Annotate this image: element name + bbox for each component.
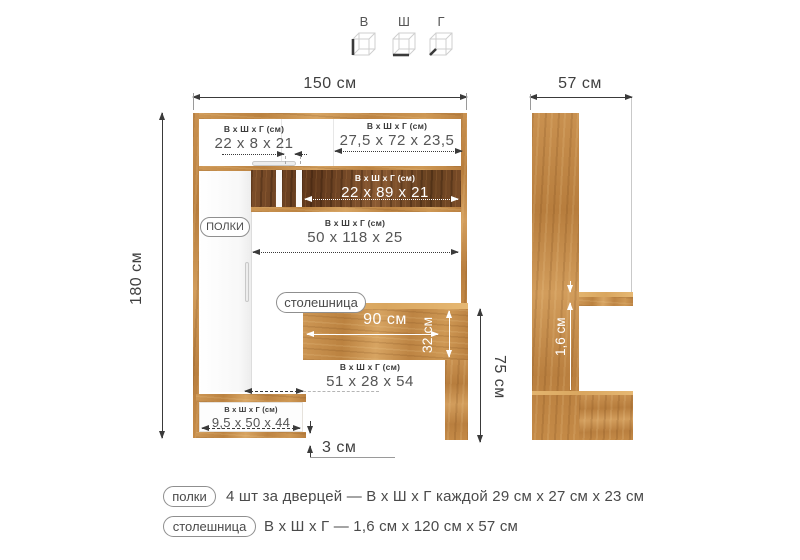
legend-shelves-pill: полки xyxy=(163,486,216,507)
front-total-height-dim: 180 см xyxy=(128,240,154,316)
legend-shelves-text: 4 шт за дверцей — В х Ш х Г каждой 29 см… xyxy=(226,488,644,505)
plinth-up-arrow xyxy=(310,446,311,457)
shelves-tag-pill: ПОЛКИ xyxy=(200,217,250,237)
niche-divider xyxy=(296,170,302,207)
open-shelf-dims: 50 x 118 x 25 xyxy=(255,229,455,246)
dims-header: В х Ш х Г (см) xyxy=(333,121,461,132)
shelf-board xyxy=(251,207,461,212)
width-cube-icon xyxy=(389,30,419,60)
legend-desktop-pill: столешница xyxy=(163,516,256,537)
legend-desktop-text: В х Ш х Г — 1,6 см х 120 см х 57 см xyxy=(264,518,518,535)
niche-label: В х Ш х Г (см) 22 x 89 x 21 xyxy=(315,173,455,201)
side-depth-dim: 57 см xyxy=(540,75,620,93)
drawer-top-board xyxy=(196,394,306,402)
thickness-down-arrow xyxy=(570,281,571,292)
top-right-cabinet-dims: 27,5 x 72 x 23,5 xyxy=(333,132,461,149)
dims-header: В х Ш х Г (см) xyxy=(295,362,445,373)
side-thickness-dim: 1,6 см xyxy=(553,308,569,366)
under-desk-width-arrow xyxy=(245,391,303,392)
plinth-down-arrow xyxy=(310,421,311,433)
side-pedestal xyxy=(579,395,633,440)
under-desk-label: В х Ш х Г (см) 51 x 28 x 54 xyxy=(295,362,445,390)
top-right-width-arrow xyxy=(335,151,462,152)
dims-header: В х Ш х Г (см) xyxy=(199,404,303,415)
desk-tag-pill: столешница xyxy=(276,292,366,313)
top-left-width-arrow xyxy=(222,154,284,155)
height-cube-icon xyxy=(349,30,379,60)
desk-height-dim: 75 см xyxy=(488,343,508,411)
front-width-arrow xyxy=(193,97,467,98)
height-axis-label: В xyxy=(360,14,369,29)
top-left-cabinet-dims: 22 x 8 x 21 xyxy=(199,135,309,152)
side-depth-arrow xyxy=(530,97,632,98)
desk-depth-arrow xyxy=(449,311,450,357)
front-total-width-dim: 150 см xyxy=(250,75,410,93)
drawer-label: В х Ш х Г (см) 9,5 x 50 x 44 xyxy=(199,404,303,430)
desk-height-arrow xyxy=(480,309,481,442)
under-desk-guide xyxy=(303,391,379,392)
top-left-cabinet-label: В х Ш х Г (см) 22 x 8 x 21 xyxy=(199,124,309,152)
top-right-cabinet-label: В х Ш х Г (см) 27,5 x 72 x 23,5 xyxy=(333,121,461,149)
drawer-width-arrow xyxy=(202,428,300,429)
side-desktop-panel xyxy=(579,297,633,306)
dims-header: В х Ш х Г (см) xyxy=(255,218,455,229)
thickness-up-arrow xyxy=(570,303,571,390)
extension-line xyxy=(631,98,632,297)
top-mid-width-arrow xyxy=(295,154,307,155)
open-shelf-label: В х Ш х Г (см) 50 x 118 x 25 xyxy=(255,218,455,246)
plinth-height-dim: 3 см xyxy=(322,439,382,457)
dims-header: В х Ш х Г (см) xyxy=(199,124,309,135)
extension-line xyxy=(466,93,467,110)
tall-door-handle xyxy=(245,262,249,302)
desk-right-leg xyxy=(445,360,468,440)
depth-axis-label: Г xyxy=(437,14,444,29)
frame-top-rail xyxy=(193,113,467,119)
depth-cube-icon xyxy=(426,30,456,60)
front-height-arrow xyxy=(162,113,163,438)
dims-header: В х Ш х Г (см) xyxy=(315,173,455,184)
niche-divider xyxy=(276,170,282,207)
height-axis-group: В xyxy=(346,14,382,60)
niche-width-arrow xyxy=(305,199,458,200)
frame-right-stile xyxy=(461,113,467,309)
depth-axis-group: Г xyxy=(423,14,459,60)
extension-line xyxy=(530,94,531,110)
open-shelf-width-arrow xyxy=(253,252,458,253)
width-axis-group: Ш xyxy=(386,14,422,60)
under-desk-dims: 51 x 28 x 54 xyxy=(295,373,445,390)
furniture-dimension-diagram: В Ш Г xyxy=(0,0,800,560)
desk-depth-dim: 32 см xyxy=(419,313,435,357)
plinth-board xyxy=(196,432,306,438)
extension-line xyxy=(193,93,194,110)
width-axis-label: Ш xyxy=(398,14,410,29)
plinth-leader-line xyxy=(310,457,395,458)
